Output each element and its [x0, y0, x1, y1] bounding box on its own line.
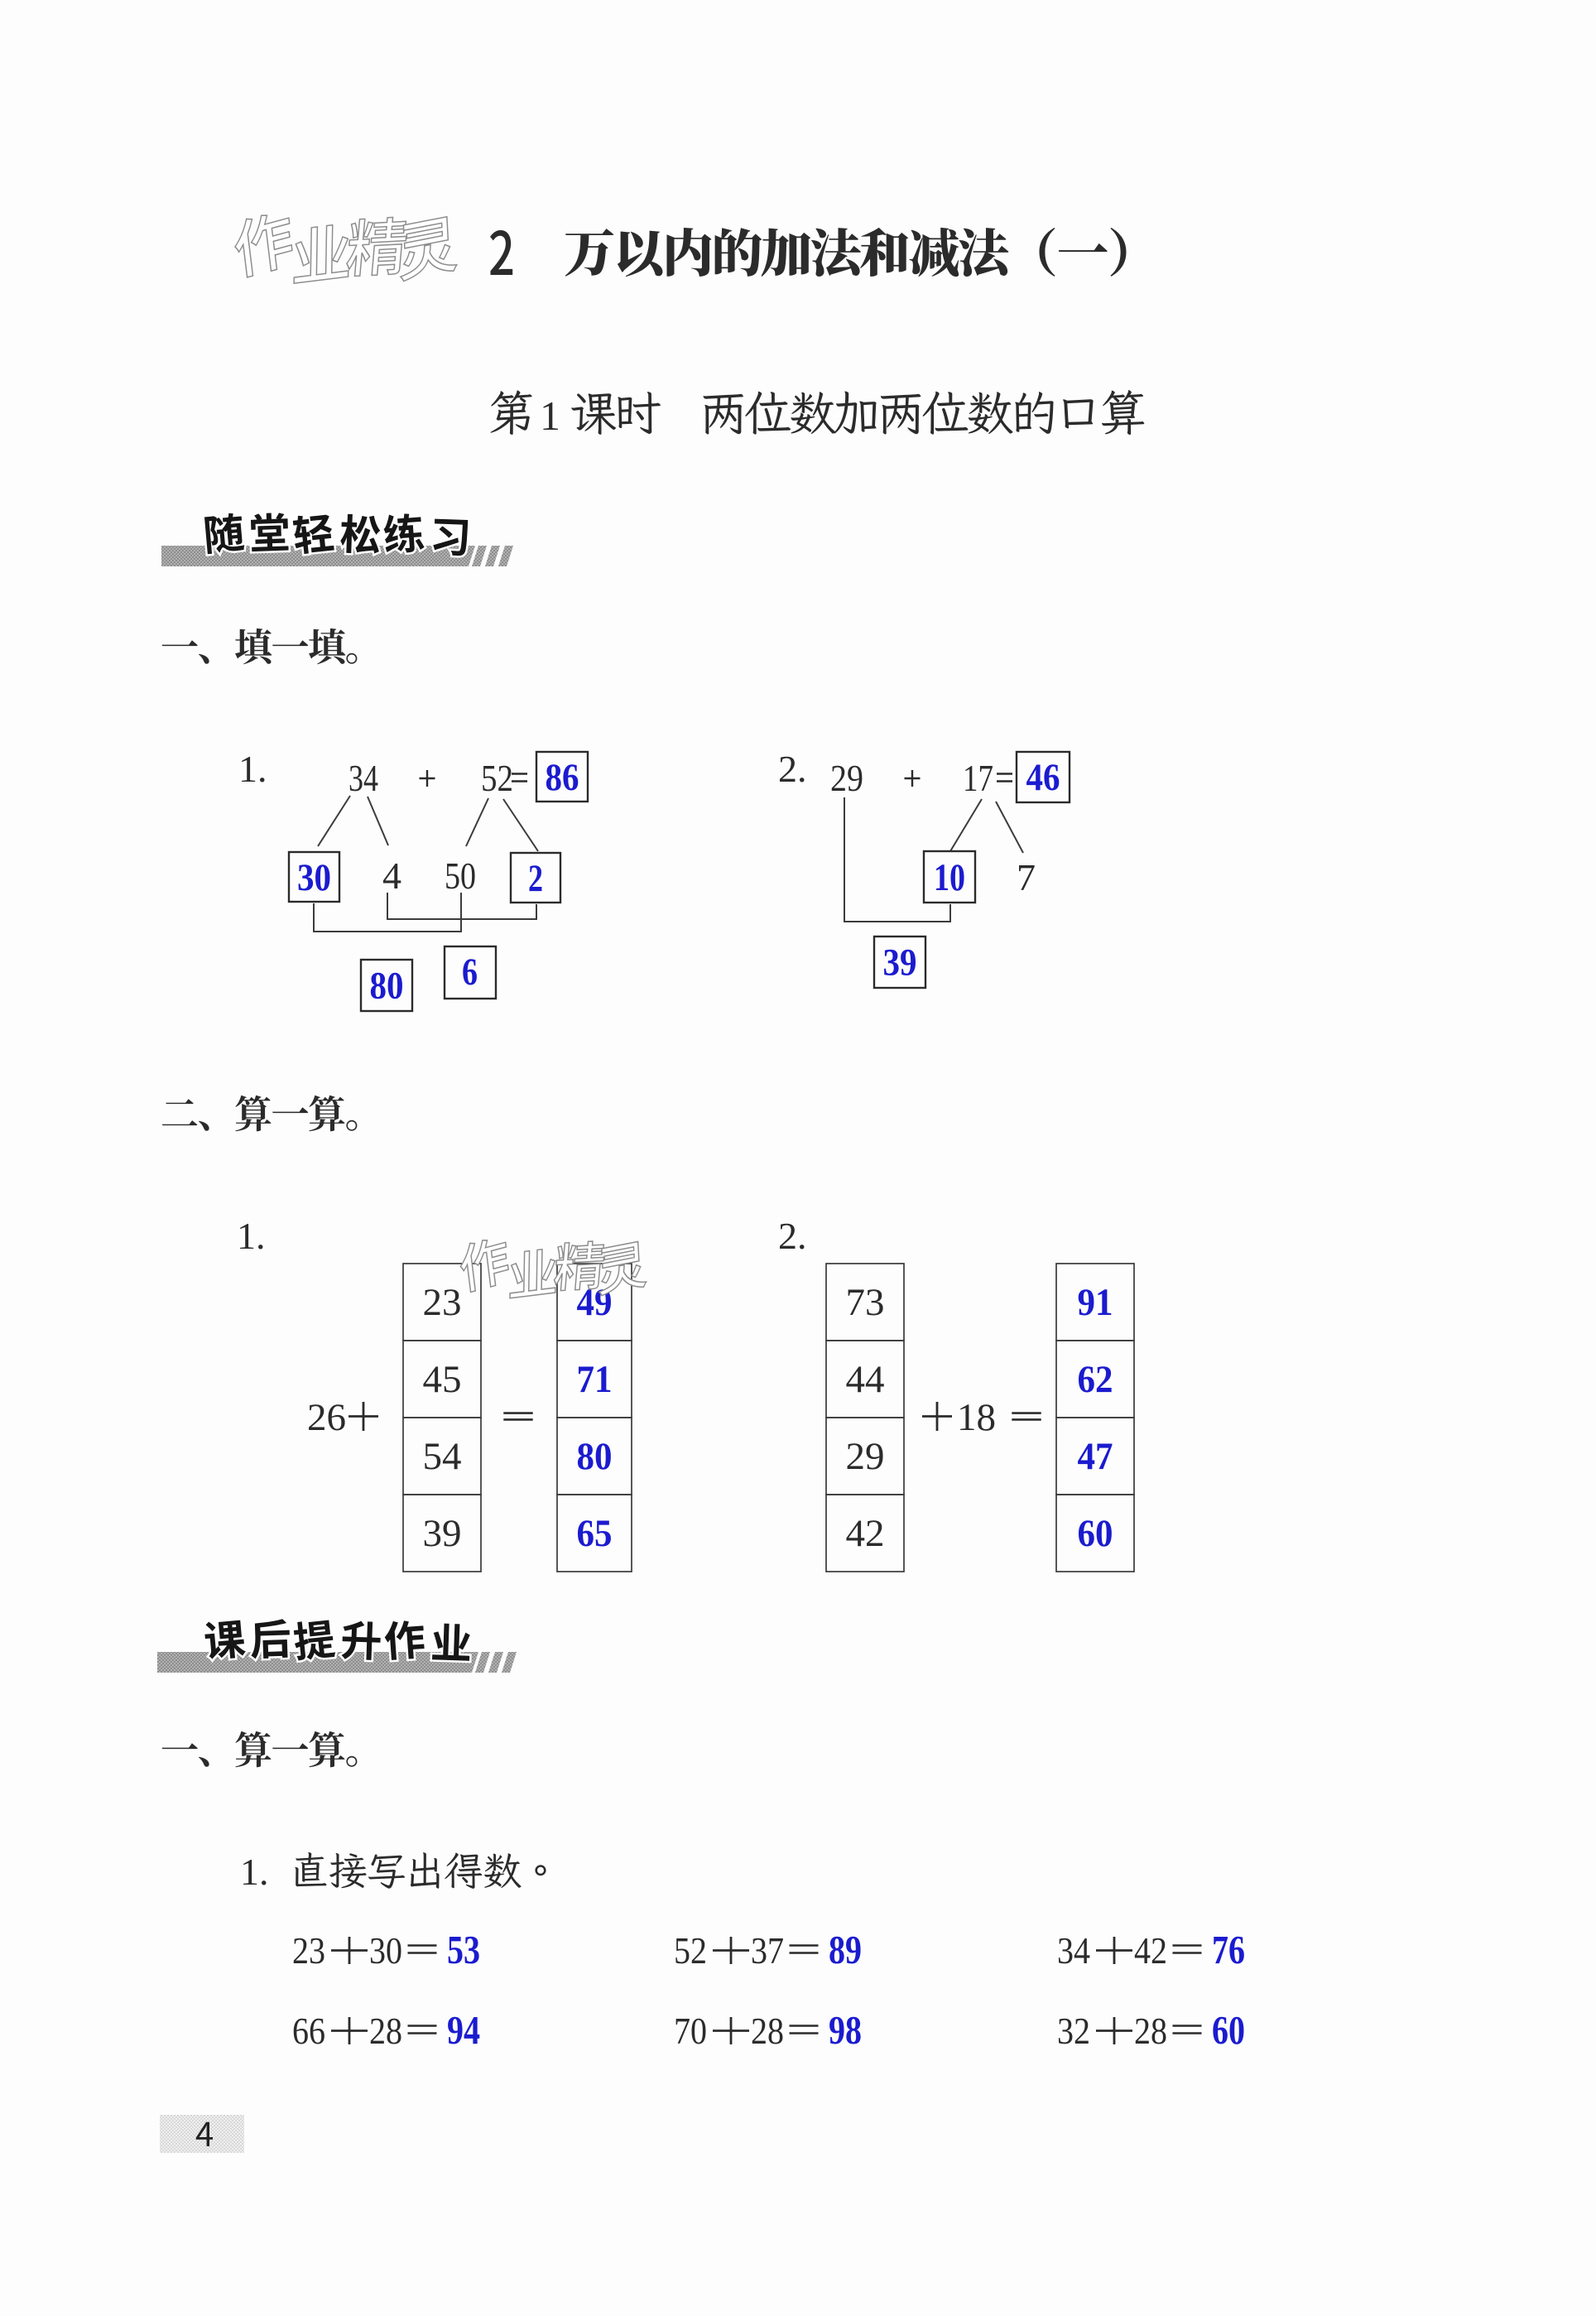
svg-text:71: 71: [577, 1358, 613, 1401]
svg-text:42: 42: [846, 1512, 885, 1555]
svg-text:54: 54: [423, 1435, 462, 1478]
svg-text:70: 70: [674, 2010, 707, 2052]
svg-text:65: 65: [577, 1512, 613, 1555]
svg-text:1: 1: [540, 392, 560, 439]
svg-text:39: 39: [423, 1512, 462, 1555]
svg-text:47: 47: [1078, 1435, 1113, 1478]
svg-text:2.: 2.: [778, 748, 807, 790]
svg-text:42: 42: [1134, 1929, 1167, 1972]
svg-text:1.: 1.: [237, 1215, 266, 1257]
svg-text:44: 44: [846, 1358, 885, 1401]
svg-text:1.: 1.: [240, 1851, 269, 1893]
svg-text:89: 89: [829, 1927, 862, 1972]
svg-text:34: 34: [349, 757, 378, 799]
svg-text:66: 66: [292, 2010, 325, 2052]
svg-text:29: 29: [846, 1435, 885, 1478]
svg-text:34: 34: [1057, 1929, 1090, 1972]
svg-text:52: 52: [674, 1929, 707, 1972]
svg-text:80: 80: [370, 965, 404, 1008]
svg-text:60: 60: [1212, 2007, 1245, 2053]
svg-text:4: 4: [382, 855, 401, 897]
svg-text:45: 45: [423, 1358, 462, 1401]
svg-text:6: 6: [462, 951, 478, 994]
svg-text:53: 53: [447, 1927, 480, 1972]
svg-text:62: 62: [1078, 1358, 1113, 1401]
svg-text:28: 28: [369, 2010, 402, 2052]
svg-text:23: 23: [292, 1929, 325, 1972]
svg-text:18: 18: [957, 1396, 996, 1439]
svg-text:76: 76: [1212, 1927, 1245, 1972]
svg-text:50: 50: [445, 855, 476, 897]
svg-text:7: 7: [1017, 856, 1036, 898]
svg-text:26: 26: [307, 1396, 346, 1439]
svg-text:98: 98: [829, 2007, 862, 2053]
svg-text:91: 91: [1078, 1281, 1113, 1324]
svg-text:52: 52: [481, 757, 513, 799]
svg-text:29: 29: [830, 757, 863, 799]
svg-text:30: 30: [297, 856, 331, 899]
svg-text:86: 86: [546, 756, 579, 799]
svg-text:94: 94: [447, 2007, 480, 2053]
svg-text:39: 39: [883, 941, 917, 985]
svg-text:37: 37: [751, 1929, 784, 1972]
svg-text:60: 60: [1078, 1512, 1113, 1555]
svg-text:2.: 2.: [778, 1215, 807, 1257]
svg-text:32: 32: [1057, 2010, 1090, 2052]
svg-text:80: 80: [577, 1435, 613, 1478]
svg-text:73: 73: [846, 1281, 885, 1324]
svg-text:17: 17: [963, 757, 993, 799]
svg-text:23: 23: [423, 1281, 462, 1324]
svg-text:2: 2: [528, 857, 543, 900]
svg-text:46: 46: [1026, 756, 1060, 799]
svg-text:28: 28: [751, 2010, 784, 2052]
svg-text:30: 30: [369, 1929, 402, 1972]
svg-text:1.: 1.: [238, 748, 267, 790]
svg-text:28: 28: [1134, 2010, 1167, 2052]
svg-text:10: 10: [934, 856, 965, 899]
